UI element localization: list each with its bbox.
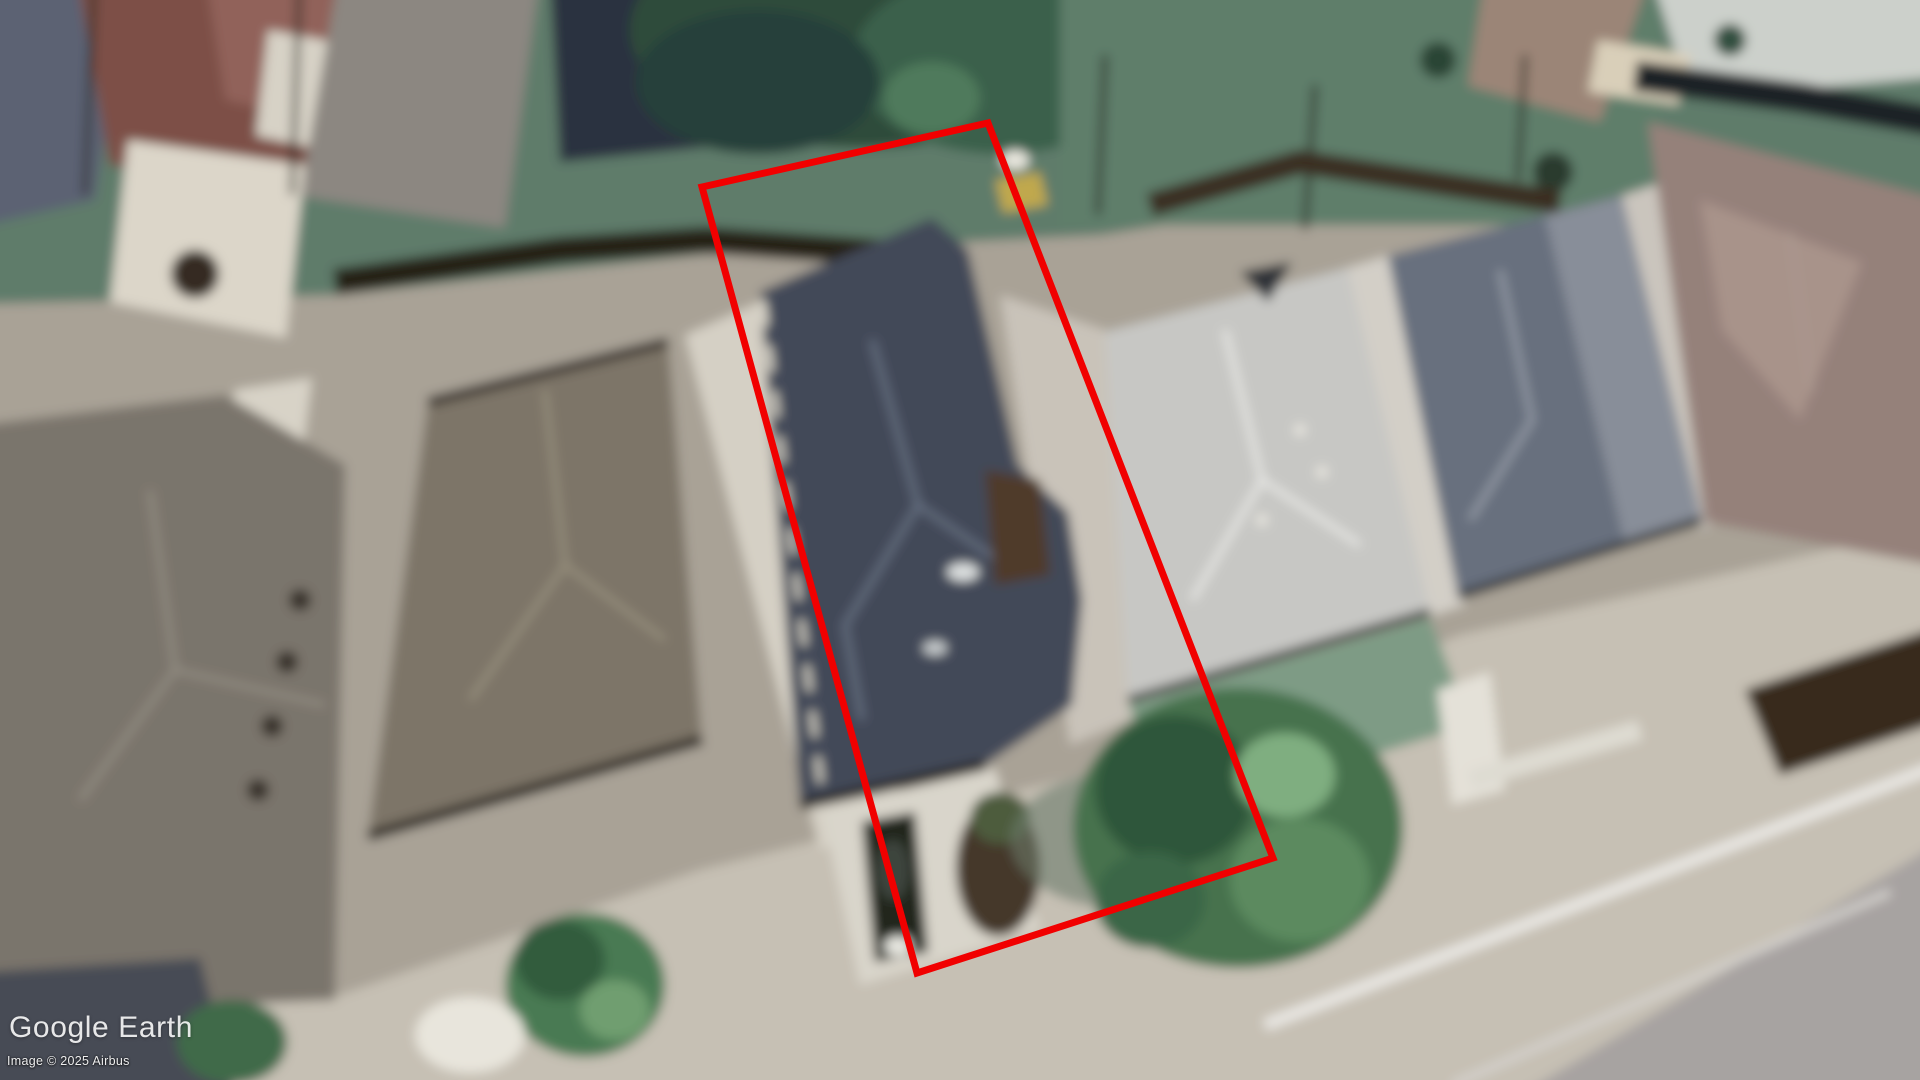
lawn-rock [1256, 514, 1268, 526]
white-car [415, 997, 525, 1073]
skylight [923, 641, 947, 655]
lawn-rock [1316, 466, 1328, 478]
skylight [947, 563, 979, 581]
rear-bush [1420, 42, 1456, 78]
back-tree-canopy [636, 10, 880, 154]
neighbor-roof-gray [300, 0, 545, 228]
subject-porch-roof [985, 470, 1050, 585]
back-tree-highlight [884, 62, 980, 134]
aerial-photo-layer [0, 0, 1920, 1080]
google-earth-logo: Google Earth [9, 1011, 193, 1045]
lawn-rock [1294, 424, 1306, 436]
google-earth-viewport[interactable]: Google Earth Image © 2025 Airbus [0, 0, 1920, 1080]
stepping-stone [261, 715, 283, 737]
stepping-stone [276, 651, 298, 673]
rear-bush [1533, 152, 1573, 192]
patio-firepit [171, 250, 219, 298]
front-tree-mid [1230, 818, 1370, 942]
imagery-attribution: Image © 2025 Airbus [7, 1054, 130, 1068]
stepping-stone [247, 779, 269, 801]
front-tree-shade [1095, 715, 1255, 865]
stepping-stone [289, 589, 311, 611]
rear-bush [1714, 24, 1746, 56]
small-tree-highlight [580, 980, 650, 1040]
satellite-imagery-canvas [0, 0, 1920, 1080]
far-left-house-roof [0, 395, 345, 1015]
